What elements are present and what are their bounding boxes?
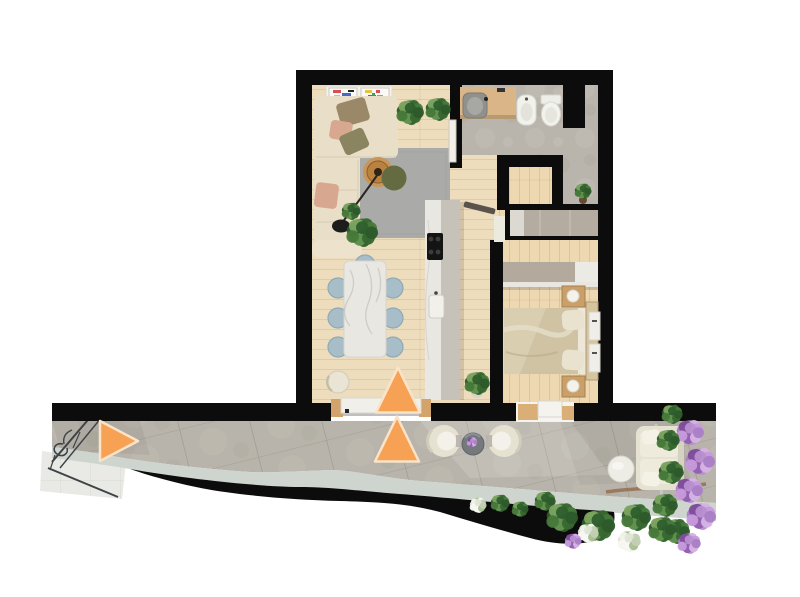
bed-pillow-1 (561, 309, 584, 330)
wall-bottom-right-segment (574, 403, 716, 421)
cooktop (427, 233, 443, 260)
sofa-pillow-2 (641, 471, 660, 487)
pillow-pink-2 (313, 182, 339, 210)
nightstand-bottom (562, 376, 585, 397)
table-lamp-1 (567, 290, 579, 302)
wall-bottom-left-segment (52, 403, 331, 421)
bathroom-door (449, 120, 456, 162)
cream-end-chair (327, 371, 349, 393)
double-bed (504, 302, 598, 380)
bedroom-door-jamb (494, 216, 505, 242)
wall-bedroom-left (490, 240, 503, 418)
vanity-accessory (497, 88, 505, 92)
bedroom-terrace-door (516, 401, 574, 422)
table-lamp-2 (567, 380, 579, 392)
wall-hall-divider (497, 155, 509, 210)
floor-plan-canvas (0, 0, 800, 597)
olive-pouf (382, 166, 407, 191)
bidet (517, 95, 536, 125)
wall-left (296, 70, 312, 415)
floor-plan-stage (0, 0, 800, 597)
marble-dining-table (344, 261, 386, 357)
toilet (541, 95, 561, 126)
bed-pillow-2 (561, 349, 584, 370)
nightstand-top (562, 286, 585, 307)
wall-nook-block (563, 70, 585, 128)
kitchen-island (425, 200, 464, 400)
bathroom-sink (463, 93, 488, 118)
hallway-floor (509, 167, 552, 205)
wall-bottom-middle-segment (431, 403, 516, 421)
round-coffee-table (608, 456, 634, 482)
kitchen-sink (429, 291, 444, 318)
wall-nook-left (552, 167, 563, 210)
built-in-wardrobe (510, 210, 598, 236)
